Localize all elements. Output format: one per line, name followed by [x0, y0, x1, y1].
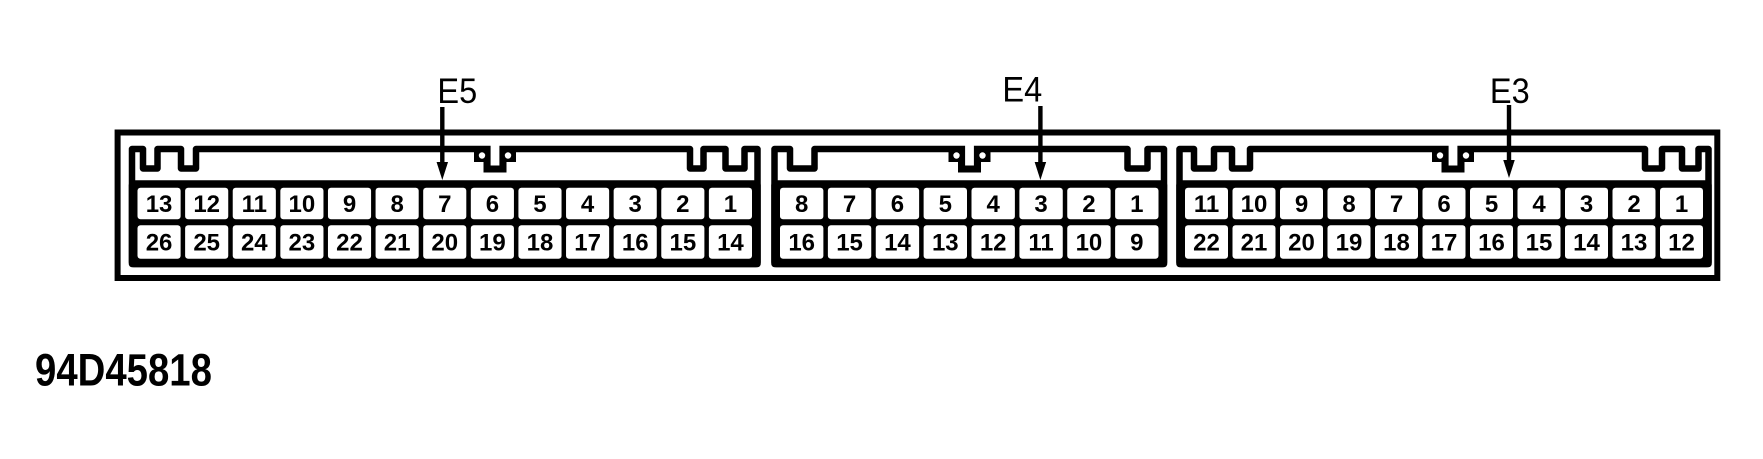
svg-text:12: 12	[193, 191, 220, 218]
svg-text:E3: E3	[1490, 72, 1530, 111]
svg-text:1: 1	[1130, 191, 1143, 218]
svg-text:7: 7	[843, 191, 856, 218]
svg-text:8: 8	[390, 191, 403, 218]
svg-text:14: 14	[1573, 230, 1600, 257]
svg-text:6: 6	[486, 191, 499, 218]
svg-text:23: 23	[289, 230, 316, 257]
svg-text:5: 5	[533, 191, 546, 218]
svg-text:16: 16	[622, 230, 649, 257]
svg-text:14: 14	[717, 230, 744, 257]
svg-text:20: 20	[1288, 230, 1315, 257]
svg-text:E4: E4	[1002, 70, 1042, 109]
svg-text:8: 8	[1342, 191, 1355, 218]
svg-text:16: 16	[1478, 230, 1505, 257]
svg-text:15: 15	[836, 230, 863, 257]
svg-text:2: 2	[676, 191, 689, 218]
svg-text:10: 10	[1241, 191, 1268, 218]
svg-text:E5: E5	[437, 72, 477, 111]
svg-text:11: 11	[1194, 191, 1219, 218]
svg-text:4: 4	[1532, 191, 1546, 218]
svg-text:22: 22	[336, 230, 363, 257]
svg-text:1: 1	[1675, 191, 1688, 218]
svg-text:4: 4	[581, 191, 595, 218]
svg-text:12: 12	[980, 230, 1007, 257]
svg-text:9: 9	[1130, 230, 1143, 257]
svg-text:9: 9	[1295, 191, 1308, 218]
svg-text:18: 18	[527, 230, 554, 257]
svg-text:13: 13	[146, 191, 173, 218]
svg-text:18: 18	[1383, 230, 1410, 257]
svg-text:13: 13	[932, 230, 959, 257]
svg-text:25: 25	[193, 230, 220, 257]
svg-text:20: 20	[431, 230, 458, 257]
svg-text:4: 4	[987, 191, 1001, 218]
svg-text:19: 19	[479, 230, 506, 257]
svg-text:22: 22	[1193, 230, 1220, 257]
svg-text:11: 11	[242, 191, 267, 218]
svg-text:21: 21	[1241, 230, 1268, 257]
svg-text:2: 2	[1627, 191, 1640, 218]
svg-text:3: 3	[1034, 191, 1047, 218]
svg-text:6: 6	[891, 191, 904, 218]
svg-text:17: 17	[1431, 230, 1458, 257]
svg-text:3: 3	[1580, 191, 1593, 218]
svg-text:7: 7	[438, 191, 451, 218]
svg-text:5: 5	[939, 191, 952, 218]
svg-text:19: 19	[1336, 230, 1363, 257]
svg-text:14: 14	[884, 230, 911, 257]
svg-text:9: 9	[343, 191, 356, 218]
svg-text:13: 13	[1621, 230, 1648, 257]
svg-text:7: 7	[1390, 191, 1403, 218]
svg-text:3: 3	[629, 191, 642, 218]
svg-text:17: 17	[574, 230, 601, 257]
svg-text:12: 12	[1668, 230, 1695, 257]
svg-text:94D45818: 94D45818	[35, 345, 212, 396]
svg-text:26: 26	[146, 230, 173, 257]
svg-text:2: 2	[1082, 191, 1095, 218]
svg-text:15: 15	[1526, 230, 1553, 257]
svg-text:1: 1	[724, 191, 737, 218]
svg-text:10: 10	[1076, 230, 1103, 257]
svg-text:16: 16	[788, 230, 815, 257]
svg-text:15: 15	[669, 230, 696, 257]
svg-text:24: 24	[241, 230, 268, 257]
svg-text:10: 10	[289, 191, 316, 218]
svg-text:8: 8	[795, 191, 808, 218]
svg-text:5: 5	[1485, 191, 1498, 218]
svg-text:6: 6	[1437, 191, 1450, 218]
svg-text:11: 11	[1028, 230, 1053, 257]
svg-text:21: 21	[384, 230, 411, 257]
